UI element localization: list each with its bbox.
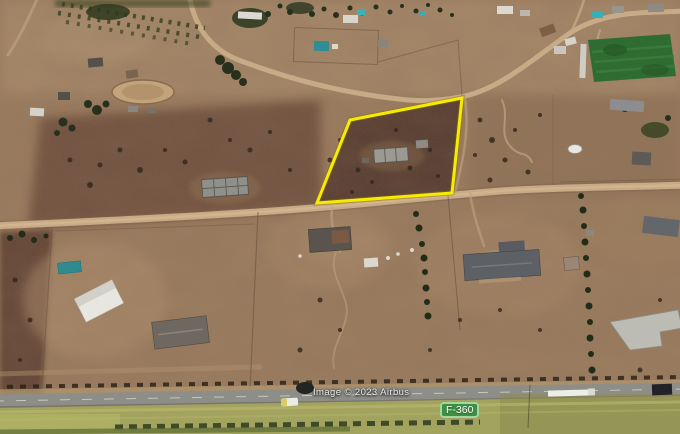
building <box>238 11 262 19</box>
shed <box>58 261 82 274</box>
building <box>520 10 530 16</box>
shed <box>564 256 580 270</box>
building <box>58 92 70 100</box>
truck <box>652 384 672 396</box>
building <box>343 15 358 23</box>
map-viewport[interactable]: Image © 2023 Airbus F-360 <box>0 0 680 434</box>
building <box>632 152 652 166</box>
building <box>416 140 429 149</box>
building <box>586 230 594 237</box>
building <box>314 41 329 52</box>
building <box>88 57 104 67</box>
building <box>648 4 664 13</box>
pool <box>592 12 603 18</box>
building <box>378 40 388 47</box>
pool <box>420 11 426 15</box>
highway <box>0 377 680 434</box>
foundation-slab <box>374 147 409 163</box>
foundation-slab <box>201 176 248 197</box>
building <box>497 6 513 14</box>
pool <box>357 10 365 15</box>
satellite-imagery <box>0 0 680 434</box>
building <box>612 6 624 13</box>
building <box>30 108 44 117</box>
construction-site <box>308 227 352 253</box>
road-label-badge[interactable]: F-360 <box>440 402 479 418</box>
car <box>281 398 298 407</box>
water-tank <box>568 145 582 154</box>
vehicle <box>296 382 314 394</box>
building <box>362 158 369 163</box>
building <box>126 69 139 79</box>
building <box>332 44 338 49</box>
